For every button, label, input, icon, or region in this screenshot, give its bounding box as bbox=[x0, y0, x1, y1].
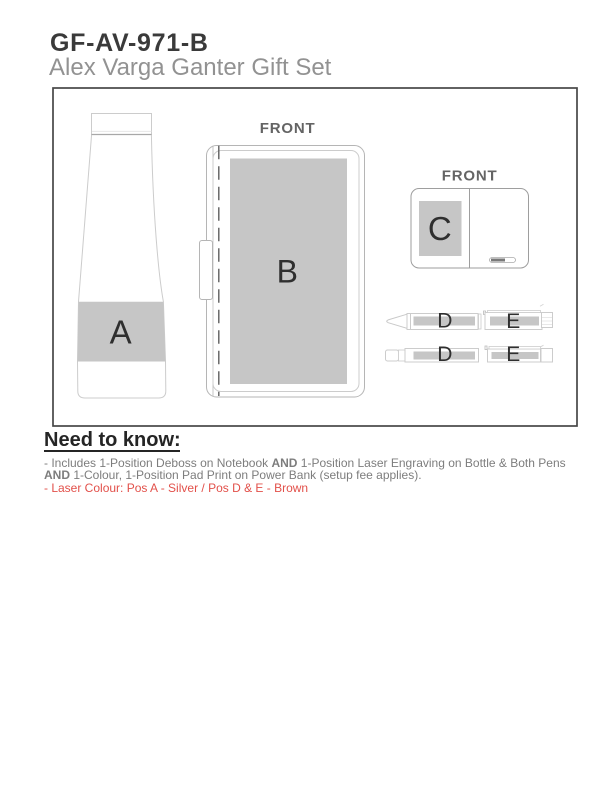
svg-text:A: A bbox=[110, 314, 132, 351]
svg-text:C: C bbox=[428, 210, 452, 247]
svg-text:B: B bbox=[277, 253, 298, 289]
svg-text:FRONT: FRONT bbox=[442, 167, 498, 184]
svg-text:E: E bbox=[506, 310, 520, 333]
svg-text:D: D bbox=[437, 343, 452, 366]
svg-text:E: E bbox=[506, 343, 520, 366]
svg-text:FRONT: FRONT bbox=[260, 120, 316, 137]
svg-text:D: D bbox=[437, 310, 452, 333]
